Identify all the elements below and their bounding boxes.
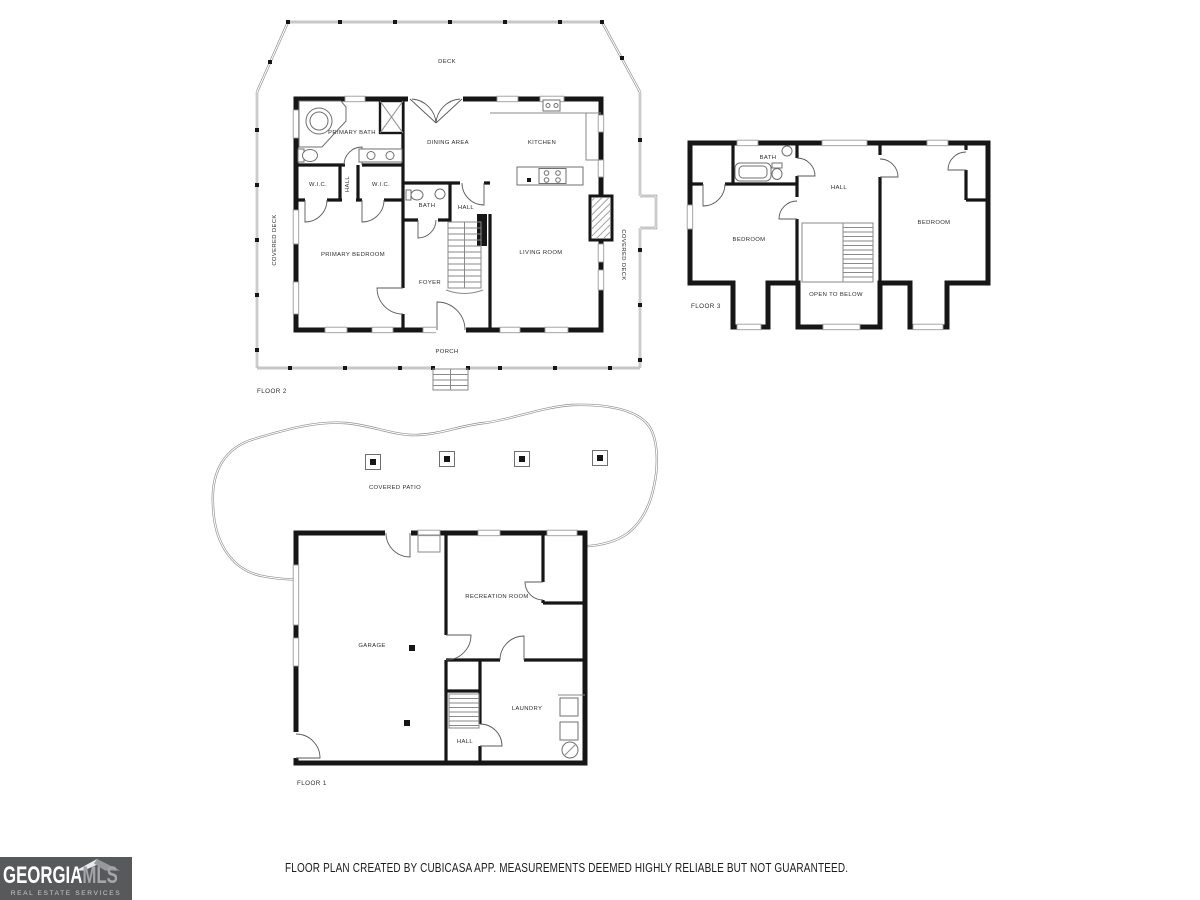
room-label-foyer: FOYER (419, 280, 441, 286)
fireplace-icon (590, 196, 612, 240)
floor-2-plan: DECK PRIMARY BATH DINING AREA KITCHEN W.… (255, 20, 656, 395)
floor-3-plan: BATH HALL BEDROOM BEDROOM OPEN TO BELOW … (687, 140, 988, 330)
room-label-bedroom-left: BEDROOM (733, 237, 766, 243)
stove-icon (539, 169, 566, 184)
dryer-icon (560, 722, 578, 740)
room-label-bath-f3: BATH (760, 155, 777, 161)
room-label-closet-hall: HALL (345, 176, 351, 193)
room-label-recreation-room: RECREATION ROOM (465, 594, 528, 600)
room-label-covered-patio: COVERED PATIO (369, 485, 421, 491)
patio-posts (366, 451, 608, 470)
room-label-bedroom-right: BEDROOM (918, 220, 951, 226)
room-label-primary-bedroom: PRIMARY BEDROOM (321, 252, 385, 258)
room-label-wic-left: W.I.C. (309, 182, 327, 188)
room-label-wic-right: W.I.C. (372, 182, 390, 188)
logo-wordmark: GEORGIAMLS (3, 864, 91, 888)
floor-3-label: FLOOR 3 (691, 303, 721, 310)
floor-2-label: FLOOR 2 (257, 388, 287, 395)
floor-plans-drawing: DECK PRIMARY BATH DINING AREA KITCHEN W.… (0, 0, 1200, 845)
georgia-mls-logo: GEORGIAMLS REAL ESTATE SERVICES (0, 857, 132, 900)
room-label-primary-bath: PRIMARY BATH (328, 130, 376, 136)
room-label-hall-f1: HALL (457, 739, 474, 745)
room-label-dining-area: DINING AREA (427, 140, 469, 146)
double-vanity-icon (359, 149, 402, 162)
room-label-bath: BATH (419, 203, 436, 209)
floor-plan-sheet: DECK PRIMARY BATH DINING AREA KITCHEN W.… (0, 0, 1200, 900)
disclaimer-text: FLOOR PLAN CREATED BY CUBICASA APP. MEAS… (285, 860, 1007, 875)
chimney-block (477, 214, 487, 246)
toilet-icon (298, 149, 318, 162)
washer-icon (560, 698, 578, 716)
room-label-hall-f3: HALL (831, 185, 848, 191)
room-label-covered-deck-left: COVERED DECK (272, 214, 278, 265)
sink-icon (782, 146, 792, 156)
room-label-garage: GARAGE (358, 643, 385, 649)
floor-1-plan: COVERED PATIO GARAGE RECREATION ROOM LAU… (213, 405, 657, 787)
room-label-laundry: LAUNDRY (512, 706, 543, 712)
room-label-open-to-below: OPEN TO BELOW (809, 292, 863, 298)
logo-text-georgia: GEORGIA (3, 862, 82, 889)
room-label-deck: DECK (438, 59, 456, 65)
logo-tagline: REAL ESTATE SERVICES (0, 890, 132, 897)
room-label-living-room: LIVING ROOM (519, 250, 562, 256)
room-label-covered-deck-right: COVERED DECK (620, 229, 626, 280)
porch-steps (433, 369, 468, 390)
room-label-kitchen: KITCHEN (528, 140, 556, 146)
floor-1-label: FLOOR 1 (297, 780, 327, 787)
room-label-porch: PORCH (435, 349, 458, 355)
room-label-hall: HALL (458, 205, 475, 211)
shower-icon (380, 101, 403, 133)
logo-text-mls: MLS (82, 862, 117, 889)
